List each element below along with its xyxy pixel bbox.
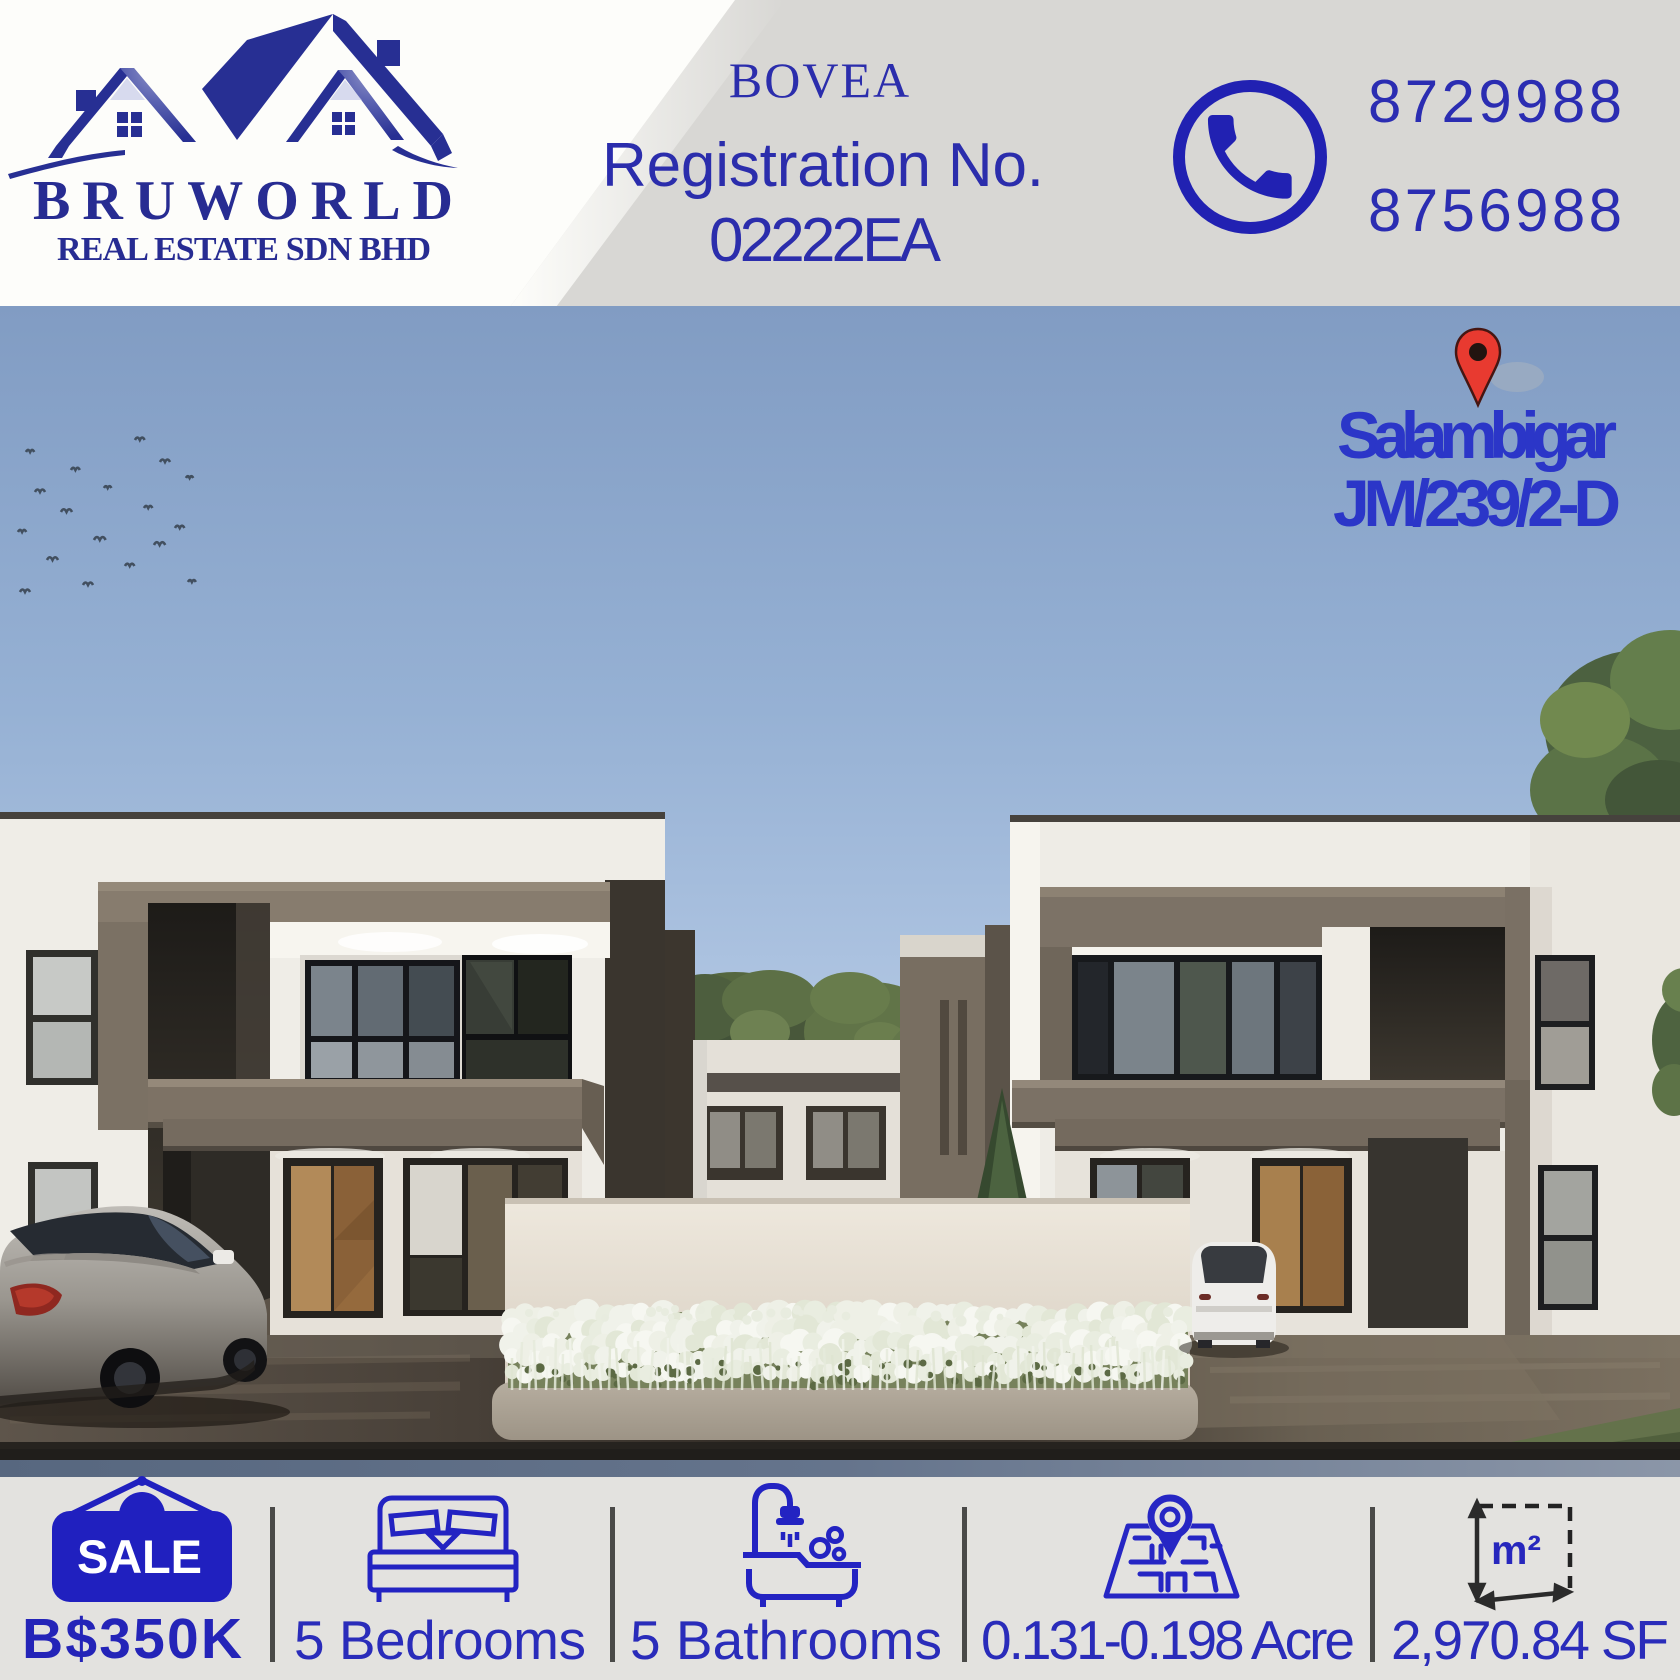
svg-text:JM/239/2-D: JM/239/2-D — [1333, 466, 1621, 540]
svg-text:02222EA: 02222EA — [709, 206, 942, 275]
svg-text:8756988: 8756988 — [1368, 177, 1622, 244]
svg-text:Registration No.: Registration No. — [602, 131, 1044, 200]
svg-text:Salambigar: Salambigar — [1337, 398, 1617, 472]
svg-text:8729988: 8729988 — [1368, 68, 1622, 135]
svg-text:m²: m² — [1491, 1527, 1541, 1573]
svg-text:SALE: SALE — [77, 1530, 207, 1583]
svg-text:REAL ESTATE SDN BHD: REAL ESTATE SDN BHD — [57, 231, 431, 268]
svg-text:5 Bedrooms: 5 Bedrooms — [294, 1609, 586, 1671]
svg-text:BOVEA: BOVEA — [729, 52, 911, 108]
svg-text:5 Bathrooms: 5 Bathrooms — [630, 1609, 942, 1671]
svg-text:0.131-0.198 Acre: 0.131-0.198 Acre — [981, 1609, 1355, 1671]
svg-text:BRUWORLD: BRUWORLD — [33, 170, 459, 232]
svg-text:2,970.84 SF: 2,970.84 SF — [1391, 1609, 1669, 1671]
